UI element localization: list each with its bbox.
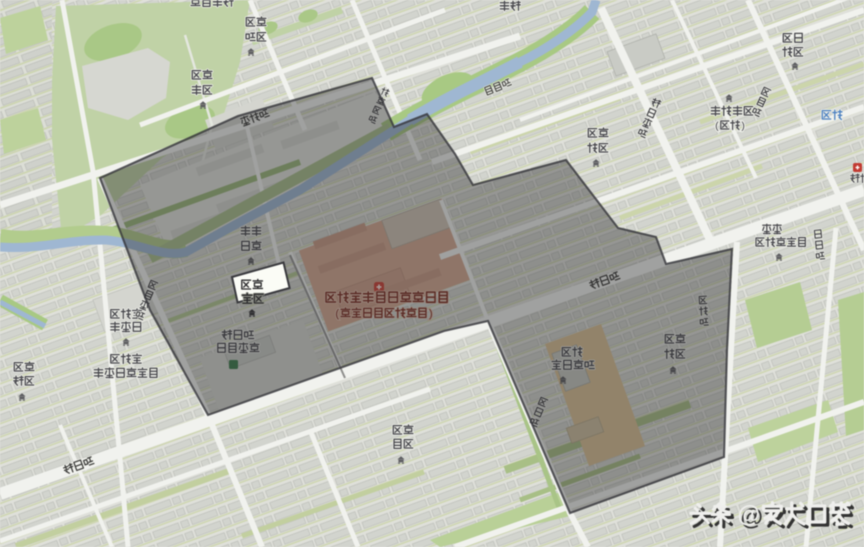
- svg-text:): ): [741, 120, 745, 132]
- svg-text:(: (: [715, 120, 719, 132]
- svg-text:@: @: [738, 501, 760, 527]
